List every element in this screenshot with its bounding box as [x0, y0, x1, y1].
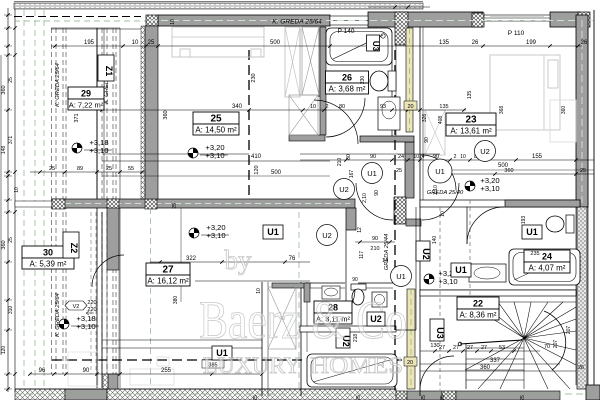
svg-text:70: 70: [544, 344, 550, 350]
svg-text:10: 10: [310, 104, 316, 110]
svg-text:U2: U2: [480, 147, 490, 156]
svg-text:30: 30: [43, 248, 53, 258]
svg-text:207: 207: [566, 326, 572, 335]
svg-text:HOMES: HOMES: [310, 353, 403, 378]
svg-text:76: 76: [289, 256, 296, 262]
svg-text:195: 195: [84, 40, 95, 46]
svg-text:255: 255: [161, 368, 172, 374]
svg-text:1014: 1014: [413, 154, 424, 160]
svg-text:80: 80: [339, 104, 345, 110]
svg-text:230: 230: [360, 76, 366, 85]
svg-text:360: 360: [1, 240, 7, 249]
svg-text:U2: U2: [339, 185, 349, 194]
svg-text:130: 130: [430, 343, 439, 349]
svg-text:U1: U1: [396, 272, 406, 281]
svg-text:25: 25: [8, 237, 14, 243]
svg-text:25: 25: [148, 40, 155, 46]
svg-text:371: 371: [74, 113, 80, 122]
svg-text:90: 90: [83, 368, 90, 374]
svg-text:10: 10: [440, 211, 446, 217]
svg-text:23: 23: [465, 115, 477, 126]
svg-text:U3: U3: [371, 41, 380, 52]
svg-text:+3,10: +3,10: [480, 184, 499, 193]
svg-text:P 140: P 140: [338, 28, 355, 35]
svg-text:24: 24: [542, 252, 552, 262]
svg-text:26: 26: [472, 40, 479, 46]
svg-text:500: 500: [498, 163, 509, 169]
svg-text:210: 210: [337, 158, 343, 167]
svg-text:120: 120: [1, 346, 7, 355]
svg-text:27: 27: [453, 345, 459, 351]
svg-text:90: 90: [352, 277, 358, 283]
svg-text:by: by: [225, 245, 253, 275]
svg-text:25: 25: [172, 203, 178, 209]
svg-text:GREDA 25/44: GREDA 25/44: [384, 234, 390, 271]
svg-text:27: 27: [162, 265, 174, 276]
svg-text:25: 25: [520, 395, 526, 400]
svg-text:117: 117: [359, 251, 365, 259]
svg-text:155: 155: [532, 154, 543, 160]
svg-text:500: 500: [270, 40, 281, 46]
svg-text:500: 500: [271, 170, 282, 176]
svg-text:U2: U2: [421, 248, 431, 260]
svg-text:90: 90: [370, 154, 376, 160]
svg-text:360: 360: [480, 365, 491, 371]
svg-text:326: 326: [422, 114, 428, 123]
svg-text:A: 16,12 m²: A: 16,12 m²: [147, 277, 189, 286]
svg-text:90: 90: [372, 236, 378, 242]
svg-text:U1: U1: [526, 227, 538, 237]
svg-text:+3,10: +3,10: [76, 322, 95, 331]
svg-text:A: 14,50 m²: A: 14,50 m²: [195, 126, 237, 135]
svg-text:26: 26: [342, 73, 352, 83]
svg-text:360: 360: [163, 110, 169, 119]
svg-text:27: 27: [439, 345, 445, 351]
svg-text:10: 10: [132, 40, 139, 46]
svg-text:U2: U2: [322, 231, 332, 240]
svg-text:10: 10: [460, 154, 466, 160]
svg-text:140: 140: [432, 236, 438, 245]
svg-text:193: 193: [521, 216, 527, 225]
svg-text:24: 24: [398, 154, 404, 160]
svg-text:+3,10: +3,10: [89, 146, 108, 155]
svg-text:25: 25: [580, 168, 586, 174]
svg-text:26: 26: [578, 365, 584, 371]
svg-text:K. GREDA 25/64: K. GREDA 25/64: [55, 63, 61, 107]
svg-text:80: 80: [346, 154, 352, 160]
svg-text:220: 220: [87, 300, 96, 306]
svg-text:P 110: P 110: [508, 30, 525, 37]
svg-text:Z1: Z1: [104, 66, 114, 77]
svg-text:+3,10: +3,10: [205, 151, 224, 160]
svg-text:25: 25: [8, 77, 14, 83]
svg-text:U1: U1: [267, 227, 279, 237]
svg-text:371: 371: [8, 136, 14, 145]
svg-text:2: 2: [454, 154, 457, 160]
svg-text:96: 96: [39, 368, 46, 374]
svg-text:K. GREDA 25/64: K. GREDA 25/64: [272, 18, 322, 25]
svg-text:360: 360: [561, 106, 567, 115]
svg-text:12: 12: [357, 227, 363, 233]
svg-text:27: 27: [467, 345, 473, 351]
svg-text:V2: V2: [73, 304, 80, 310]
svg-text:89: 89: [77, 166, 83, 172]
svg-text:2,10: 2,10: [362, 193, 368, 203]
svg-text:Z2: Z2: [69, 243, 79, 254]
svg-text:135: 135: [467, 91, 473, 100]
svg-text:207: 207: [553, 340, 559, 349]
svg-text:25: 25: [106, 166, 112, 172]
svg-text:10: 10: [170, 19, 176, 25]
svg-text:+3,10: +3,10: [206, 231, 225, 240]
svg-text:27: 27: [481, 345, 487, 351]
svg-text:U3: U3: [435, 327, 445, 339]
svg-text:322: 322: [186, 256, 197, 262]
svg-text:U1: U1: [455, 265, 467, 275]
svg-text:K. GREDA 25/64: K. GREDA 25/64: [55, 293, 61, 337]
svg-text:135: 135: [439, 40, 450, 46]
svg-text:410: 410: [251, 154, 262, 160]
svg-text:368: 368: [499, 106, 505, 115]
svg-text:167: 167: [349, 170, 355, 179]
svg-text:25: 25: [396, 168, 402, 174]
svg-text:310: 310: [8, 306, 14, 315]
svg-text:90: 90: [374, 190, 380, 196]
svg-text:A: 13,61 m²: A: 13,61 m²: [450, 127, 492, 136]
svg-text:120: 120: [254, 165, 260, 174]
svg-text:20: 20: [407, 360, 413, 366]
svg-text:A: 3,68 m²: A: 3,68 m²: [329, 85, 366, 94]
svg-text:U1: U1: [367, 169, 377, 178]
svg-text:90: 90: [424, 137, 430, 143]
svg-text:A: 4,07 m²: A: 4,07 m²: [529, 264, 566, 273]
svg-text:Baerz & Co: Baerz & Co: [199, 290, 407, 350]
svg-text:340: 340: [232, 104, 243, 110]
svg-text:25: 25: [440, 395, 446, 400]
svg-text:25: 25: [421, 395, 427, 400]
svg-text:408: 408: [438, 116, 444, 125]
svg-text:360: 360: [1, 85, 7, 94]
svg-text:U1: U1: [435, 167, 445, 176]
svg-text:53: 53: [499, 345, 505, 351]
svg-text:25: 25: [356, 395, 362, 400]
svg-text:148: 148: [1, 146, 7, 155]
svg-text:25: 25: [253, 395, 259, 400]
svg-text:25: 25: [49, 166, 55, 172]
svg-text:93: 93: [380, 104, 386, 110]
svg-text:380: 380: [173, 296, 179, 305]
svg-text:29: 29: [81, 89, 91, 99]
svg-text:55: 55: [128, 166, 134, 172]
svg-text:199: 199: [526, 40, 537, 46]
svg-text:25: 25: [210, 114, 222, 125]
svg-text:220: 220: [87, 307, 96, 313]
svg-text:10: 10: [14, 187, 20, 193]
svg-text:235: 235: [530, 251, 539, 257]
svg-text:2: 2: [325, 104, 328, 110]
svg-text:LUXURY: LUXURY: [203, 353, 301, 378]
svg-text:22: 22: [473, 299, 483, 309]
svg-text:230: 230: [251, 73, 257, 82]
svg-text:337: 337: [490, 358, 501, 364]
svg-text:135: 135: [439, 104, 448, 110]
svg-text:A: 7,22 m²: A: 7,22 m²: [69, 101, 104, 110]
svg-text:A: 8,36 m²: A: 8,36 m²: [460, 311, 497, 320]
svg-text:+3,10: +3,10: [438, 277, 457, 286]
svg-text:26: 26: [581, 40, 588, 46]
svg-text:20: 20: [407, 104, 413, 110]
svg-text:210: 210: [370, 246, 379, 252]
svg-text:GREDA 25/40: GREDA 25/40: [427, 190, 464, 196]
svg-text:A: 5,39 m²: A: 5,39 m²: [30, 260, 67, 269]
